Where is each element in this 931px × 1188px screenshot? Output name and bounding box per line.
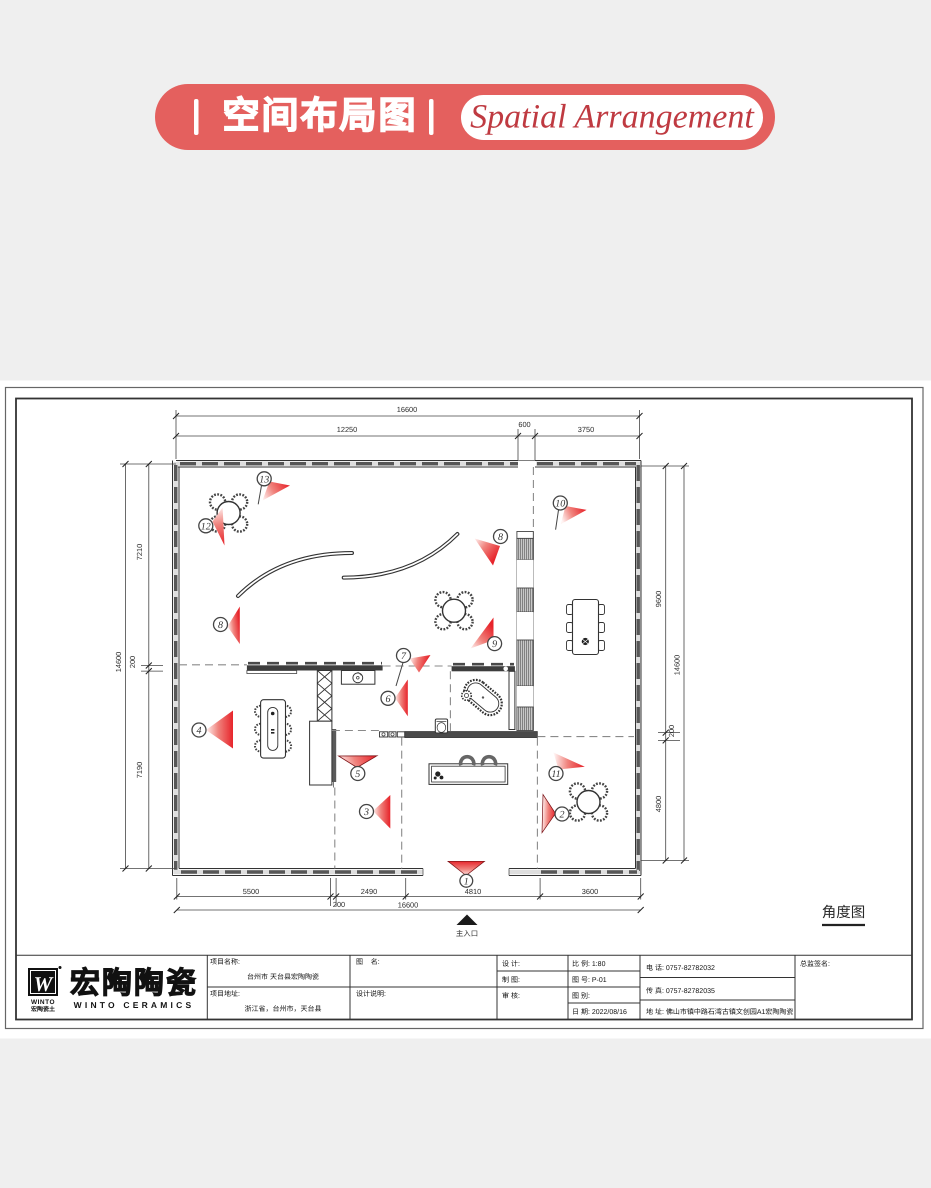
- svg-text:12250: 12250: [337, 425, 358, 434]
- svg-text:2490: 2490: [361, 887, 377, 896]
- svg-text:W: W: [34, 972, 54, 996]
- svg-text:13: 13: [259, 474, 269, 485]
- svg-text:12: 12: [201, 521, 211, 532]
- svg-text:Spatial Arrangement: Spatial Arrangement: [470, 99, 755, 136]
- svg-text:宏陶陶瓷: 宏陶陶瓷: [70, 966, 198, 1000]
- svg-text:2: 2: [560, 810, 565, 821]
- svg-text:7190: 7190: [135, 762, 144, 778]
- svg-text:4810: 4810: [465, 887, 481, 896]
- svg-text:9: 9: [492, 639, 497, 650]
- svg-text:审 核:: 审 核:: [502, 992, 520, 1000]
- svg-text:设计说明:: 设计说明:: [356, 990, 386, 998]
- svg-text:14600: 14600: [673, 655, 682, 676]
- svg-text:200: 200: [128, 656, 137, 668]
- svg-text:地 址: 佛山市镇中路石湾古镇文创园A1宏陶陶瓷: 地 址: 佛山市镇中路石湾古镇文创园A1宏陶陶瓷: [646, 1008, 793, 1016]
- svg-text:8: 8: [498, 532, 503, 543]
- svg-text:总监签名:: 总监签名:: [800, 960, 830, 968]
- svg-text:日 期: 2022/08/16: 日 期: 2022/08/16: [572, 1008, 627, 1016]
- svg-text:项目地址:: 项目地址:: [210, 990, 240, 998]
- svg-text:1: 1: [464, 876, 469, 887]
- svg-text:设 计:: 设 计:: [502, 960, 520, 968]
- svg-text:9600: 9600: [654, 591, 663, 607]
- svg-text:项目名称:: 项目名称:: [210, 958, 240, 966]
- svg-text:WINTO: WINTO: [31, 999, 55, 1006]
- svg-text:WINTO CERAMICS: WINTO CERAMICS: [74, 1000, 195, 1010]
- svg-text:16600: 16600: [397, 405, 418, 414]
- svg-text:空间布局图: 空间布局图: [223, 95, 418, 136]
- svg-text:角度图: 角度图: [822, 904, 866, 921]
- svg-text:5500: 5500: [243, 887, 259, 896]
- svg-text:200: 200: [333, 900, 345, 909]
- svg-text:主入口: 主入口: [456, 929, 478, 938]
- svg-text:3: 3: [363, 807, 369, 818]
- svg-text:图 别:: 图 别:: [572, 992, 590, 1000]
- svg-text:图 号: P-01: 图 号: P-01: [572, 976, 607, 984]
- svg-text:14600: 14600: [114, 652, 123, 673]
- svg-text:4800: 4800: [654, 796, 663, 812]
- svg-text:传 真: 0757-82782035: 传 真: 0757-82782035: [646, 987, 715, 995]
- svg-text:比 例: 1:80: 比 例: 1:80: [572, 960, 606, 968]
- svg-text:4: 4: [197, 726, 202, 737]
- svg-text:16600: 16600: [398, 901, 419, 910]
- svg-text:制 图:: 制 图:: [502, 976, 520, 984]
- svg-text:200: 200: [667, 725, 676, 737]
- svg-text:600: 600: [518, 420, 530, 429]
- svg-text:3600: 3600: [582, 887, 598, 896]
- svg-text:浙江省，台州市，天台县: 浙江省，台州市，天台县: [245, 1005, 322, 1013]
- svg-text:3750: 3750: [578, 425, 594, 434]
- svg-text:10: 10: [555, 499, 565, 510]
- svg-text:宏陶瓷土: 宏陶瓷土: [31, 1005, 55, 1013]
- svg-text:7210: 7210: [135, 544, 144, 560]
- svg-text:图 名:: 图 名:: [356, 958, 380, 966]
- svg-text:6: 6: [386, 694, 391, 705]
- svg-text:台州市 天台县宏陶陶瓷: 台州市 天台县宏陶陶瓷: [247, 973, 319, 981]
- svg-text:电 话: 0757-82782032: 电 话: 0757-82782032: [646, 964, 715, 972]
- svg-text:5: 5: [355, 769, 360, 780]
- svg-text:8: 8: [218, 620, 223, 631]
- svg-text:11: 11: [551, 769, 560, 780]
